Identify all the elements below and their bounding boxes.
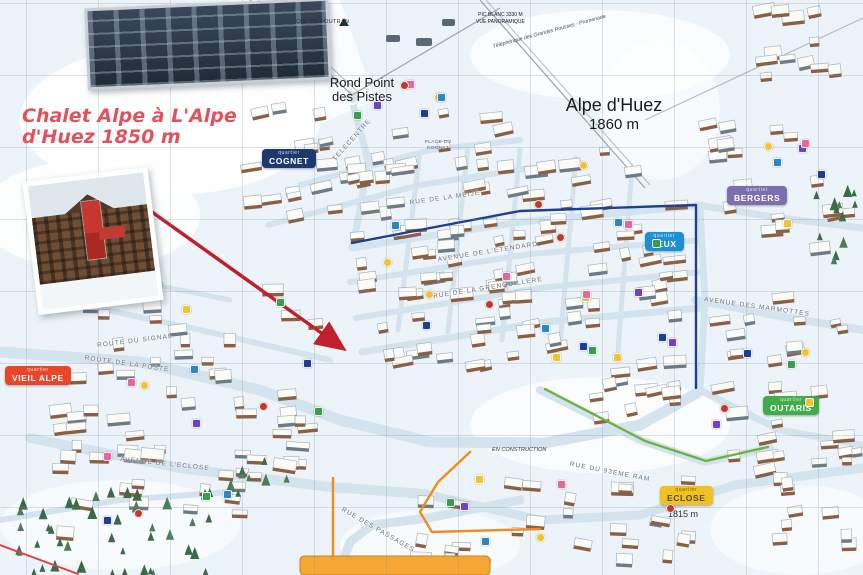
poi-marker [276, 298, 285, 307]
quartier-badge-bergers: quartierBERGERS [727, 186, 787, 205]
poi-marker [460, 502, 469, 511]
poi-marker [579, 161, 588, 170]
poi-marker [353, 111, 362, 120]
quartier-badge-vieil-alpe: quartierVIEIL ALPE [5, 366, 71, 385]
poi-marker [425, 290, 434, 299]
poi-marker [613, 353, 622, 362]
poi-marker [720, 404, 729, 413]
poi-marker [182, 305, 191, 314]
poi-marker [481, 537, 490, 546]
construction-highlight [300, 556, 490, 575]
resort-label: Alpe d'Huez 1860 m [556, 95, 672, 133]
poi-marker [502, 272, 511, 281]
quartier-badge-name: VIEIL ALPE [12, 374, 64, 383]
poi-marker [634, 288, 643, 297]
poi-marker [614, 218, 623, 227]
poi-marker [446, 498, 455, 507]
quartier-badge-name: COGNET [269, 157, 309, 166]
quartier-badge-eclose: quartierECLOSE [660, 486, 713, 505]
col-du-poutran-label: COL DU POUTRAN [296, 19, 349, 25]
poi-marker [805, 398, 814, 407]
quartier-badge-tag: quartier [734, 188, 780, 194]
poi-marker [140, 381, 149, 390]
poi-marker [103, 452, 112, 461]
resort-altitude: 1860 m [556, 116, 672, 133]
poi-marker [817, 170, 826, 179]
resort-name: Alpe d'Huez [556, 95, 672, 116]
poi-marker [764, 142, 773, 151]
chalet-photo [22, 167, 163, 315]
poi-marker [579, 342, 588, 351]
poi-marker [391, 221, 400, 230]
chalet-annotation: Chalet Alpe à L'Alpe d'Huez 1850 m [22, 106, 260, 149]
poi-marker [552, 353, 561, 362]
poi-marker [192, 419, 201, 428]
poi-marker [582, 290, 591, 299]
quartier-badge-name: BERGERS [734, 194, 780, 203]
poi-marker [668, 338, 677, 347]
poi-marker [422, 321, 431, 330]
poi-marker [588, 346, 597, 355]
poi-marker [557, 480, 566, 489]
pic-blanc-label: PIC BLANC 3330 M VUE PANORAMIQUE [476, 12, 525, 25]
poi-marker [485, 300, 494, 309]
pic-blanc-view: VUE PANORAMIQUE [476, 19, 525, 26]
poi-marker [103, 516, 112, 525]
quartier-badge-tag: quartier [667, 488, 706, 494]
poi-marker [259, 402, 268, 411]
poi-marker [202, 492, 211, 501]
quartier-badge-name: ECLOSE [667, 494, 706, 503]
poi-marker [437, 93, 446, 102]
poi-marker [400, 81, 409, 90]
en-construction-label: EN CONSTRUCTION [492, 447, 546, 453]
alpe-dhuez-map: Chalet Alpe à L'Alpe d'Huez 1850 m Rond … [0, 0, 863, 575]
poi-marker [314, 407, 323, 416]
poi-marker [303, 359, 312, 368]
quartier-badge-jeux: quartierJEUX [645, 232, 684, 251]
poi-marker [666, 504, 675, 513]
poi-marker [712, 420, 721, 429]
poi-marker [475, 475, 484, 484]
poi-marker [801, 139, 810, 148]
poi-marker [624, 220, 633, 229]
poi-marker [556, 233, 565, 242]
poi-marker [190, 365, 199, 374]
poi-marker [773, 158, 782, 167]
apartment-building-photo [84, 0, 331, 90]
pic-blanc-name: PIC BLANC 3330 M [476, 12, 525, 19]
poi-marker [652, 239, 661, 248]
poi-marker [420, 109, 429, 118]
poi-marker [658, 333, 667, 342]
quartier-badge-tag: quartier [12, 368, 64, 374]
apartment-building-photo-image [87, 1, 328, 87]
poi-marker [783, 219, 792, 228]
poi-marker [223, 490, 232, 499]
poi-marker [743, 349, 752, 358]
poi-marker [134, 509, 143, 518]
rond-point-label: Rond Point des Pistes [318, 76, 406, 104]
place-du-cognet-label: PLACE DU COGNET [421, 140, 455, 152]
poi-marker [534, 200, 543, 209]
poi-marker [373, 101, 382, 110]
poi-marker [541, 324, 550, 333]
poi-marker [801, 348, 810, 357]
poi-marker [383, 258, 392, 267]
chalet-photo-image [28, 172, 158, 309]
poi-marker [127, 378, 136, 387]
quartier-badge-tag: quartier [269, 151, 309, 157]
poi-marker [787, 360, 796, 369]
quartier-badge-cognet: quartierCOGNET [262, 149, 316, 168]
poi-marker [536, 533, 545, 542]
